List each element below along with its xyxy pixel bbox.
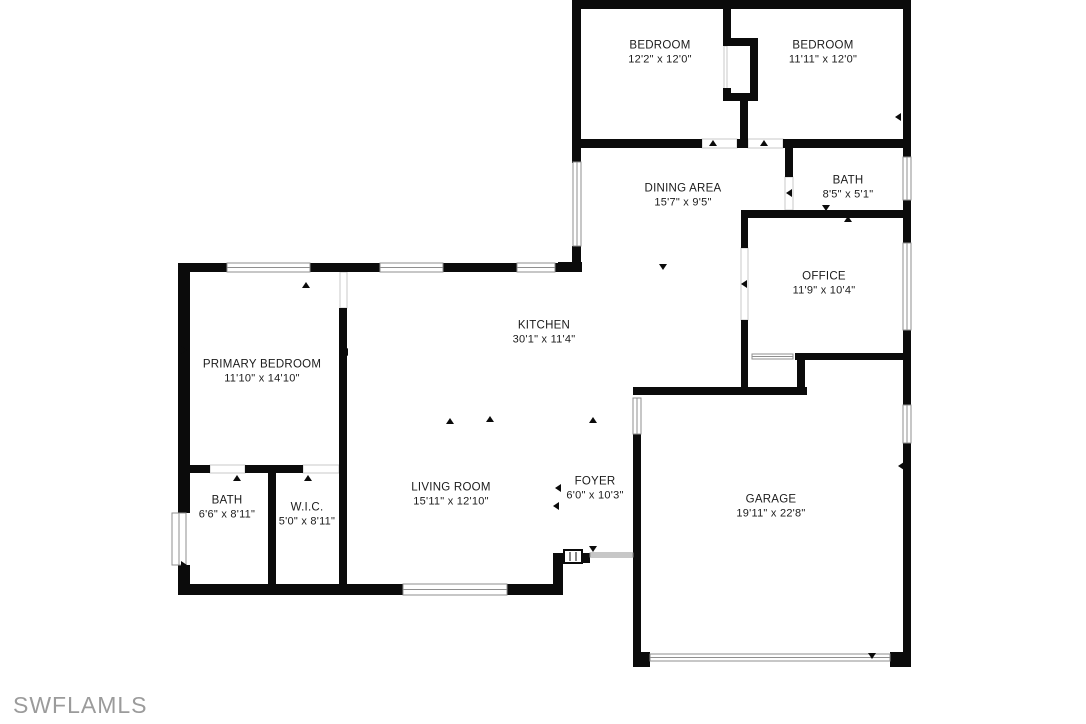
wall-segment bbox=[723, 0, 731, 43]
room-label-foyer: FOYER6'0" x 10'3" bbox=[566, 476, 623, 503]
room-dimensions: 30'1" x 11'4" bbox=[513, 333, 576, 347]
front-door bbox=[564, 550, 582, 563]
door-marker bbox=[589, 417, 597, 423]
door-marker bbox=[555, 484, 561, 492]
wall-segment bbox=[443, 263, 517, 272]
wall-segment bbox=[741, 210, 911, 218]
wall-segment bbox=[741, 320, 748, 394]
room-name: LIVING ROOM bbox=[411, 482, 490, 496]
door-openings-layer bbox=[210, 46, 793, 473]
room-dimensions: 12'2" x 12'0" bbox=[628, 53, 692, 67]
wall-segment bbox=[572, 139, 702, 148]
wall-segment bbox=[633, 434, 641, 667]
room-name: BEDROOM bbox=[628, 40, 692, 54]
room-label-office: OFFICE11'9" x 10'4" bbox=[793, 271, 856, 298]
room-dimensions: 11'11" x 12'0" bbox=[789, 53, 857, 67]
wall-segment bbox=[245, 465, 303, 473]
room-dimensions: 11'10" x 14'10" bbox=[203, 372, 321, 386]
door-marker bbox=[898, 462, 904, 470]
room-label-bedroom-2: BEDROOM11'11" x 12'0" bbox=[789, 40, 857, 67]
room-dimensions: 11'9" x 10'4" bbox=[793, 284, 856, 298]
wall-segment bbox=[572, 0, 581, 163]
door-marker bbox=[589, 546, 597, 552]
room-name: PRIMARY BEDROOM bbox=[203, 359, 321, 373]
room-name: DINING AREA bbox=[645, 183, 722, 197]
room-label-living-room: LIVING ROOM15'11" x 12'10" bbox=[411, 482, 490, 509]
room-label-primary-bedroom: PRIMARY BEDROOM11'10" x 14'10" bbox=[203, 359, 321, 386]
door-marker bbox=[233, 475, 241, 481]
room-label-kitchen: KITCHEN30'1" x 11'4" bbox=[513, 320, 576, 347]
wall-segment bbox=[633, 652, 650, 667]
room-label-bedroom-1: BEDROOM12'2" x 12'0" bbox=[628, 40, 692, 67]
room-dimensions: 15'11" x 12'10" bbox=[411, 495, 490, 509]
door-marker bbox=[446, 418, 454, 424]
room-name: OFFICE bbox=[793, 271, 856, 285]
room-dimensions: 15'7" x 9'5" bbox=[645, 196, 722, 210]
wall-segment bbox=[178, 263, 190, 513]
wall-segment bbox=[555, 263, 582, 272]
wall-segment bbox=[268, 473, 276, 595]
room-dimensions: 6'6" x 8'11" bbox=[199, 508, 255, 522]
room-name: GARAGE bbox=[736, 494, 805, 508]
wall-segment bbox=[903, 200, 911, 243]
wall-segment bbox=[903, 0, 911, 157]
room-label-dining-area: DINING AREA15'7" x 9'5" bbox=[645, 183, 722, 210]
door-marker bbox=[302, 282, 310, 288]
room-name: W.I.C. bbox=[279, 502, 335, 516]
room-dimensions: 6'0" x 10'3" bbox=[566, 489, 623, 503]
door-marker bbox=[895, 113, 901, 121]
door-marker bbox=[553, 502, 559, 510]
wall-segment bbox=[723, 88, 731, 101]
wall-segment bbox=[633, 387, 807, 395]
wall-segment bbox=[795, 353, 903, 360]
wall-segment bbox=[178, 465, 210, 473]
wall-segment bbox=[903, 330, 911, 405]
door-opening bbox=[303, 465, 339, 473]
wall-segment bbox=[785, 148, 793, 177]
floor-plan-drawing bbox=[0, 0, 1086, 724]
door-opening bbox=[340, 272, 347, 308]
wall-segment bbox=[890, 652, 911, 667]
room-name: BEDROOM bbox=[789, 40, 857, 54]
door-opening bbox=[210, 465, 245, 473]
door-opening bbox=[724, 46, 727, 93]
room-name: BATH bbox=[199, 495, 255, 509]
room-dimensions: 5'0" x 8'11" bbox=[279, 515, 335, 529]
room-label-bath-primary: BATH6'6" x 8'11" bbox=[199, 495, 255, 522]
room-label-bath-2: BATH8'5" x 5'1" bbox=[823, 175, 874, 202]
wall-segment bbox=[178, 584, 403, 595]
wall-segment bbox=[903, 443, 911, 667]
door-marker bbox=[304, 475, 312, 481]
room-dimensions: 19'11" x 22'8" bbox=[736, 507, 805, 521]
door-markers-layer bbox=[181, 113, 904, 659]
door-opening bbox=[702, 139, 737, 148]
room-label-garage: GARAGE19'11" x 22'8" bbox=[736, 494, 805, 521]
room-name: KITCHEN bbox=[513, 320, 576, 334]
room-dimensions: 8'5" x 5'1" bbox=[823, 188, 874, 202]
front-door-symbol bbox=[564, 550, 582, 563]
watermark: SWFLAMLS bbox=[13, 692, 148, 719]
wall-segment bbox=[572, 0, 911, 9]
room-name: BATH bbox=[823, 175, 874, 189]
door-marker bbox=[486, 416, 494, 422]
wall-segment bbox=[310, 263, 380, 272]
wall-segment bbox=[783, 139, 911, 148]
wall-segment bbox=[750, 38, 758, 100]
wall-segment bbox=[737, 139, 748, 148]
room-name: FOYER bbox=[566, 476, 623, 490]
room-label-wic: W.I.C.5'0" x 8'11" bbox=[279, 502, 335, 529]
door-marker bbox=[659, 264, 667, 270]
wall-segment bbox=[741, 210, 748, 248]
floor-plan: BEDROOM12'2" x 12'0"BEDROOM11'11" x 12'0… bbox=[0, 0, 1086, 724]
